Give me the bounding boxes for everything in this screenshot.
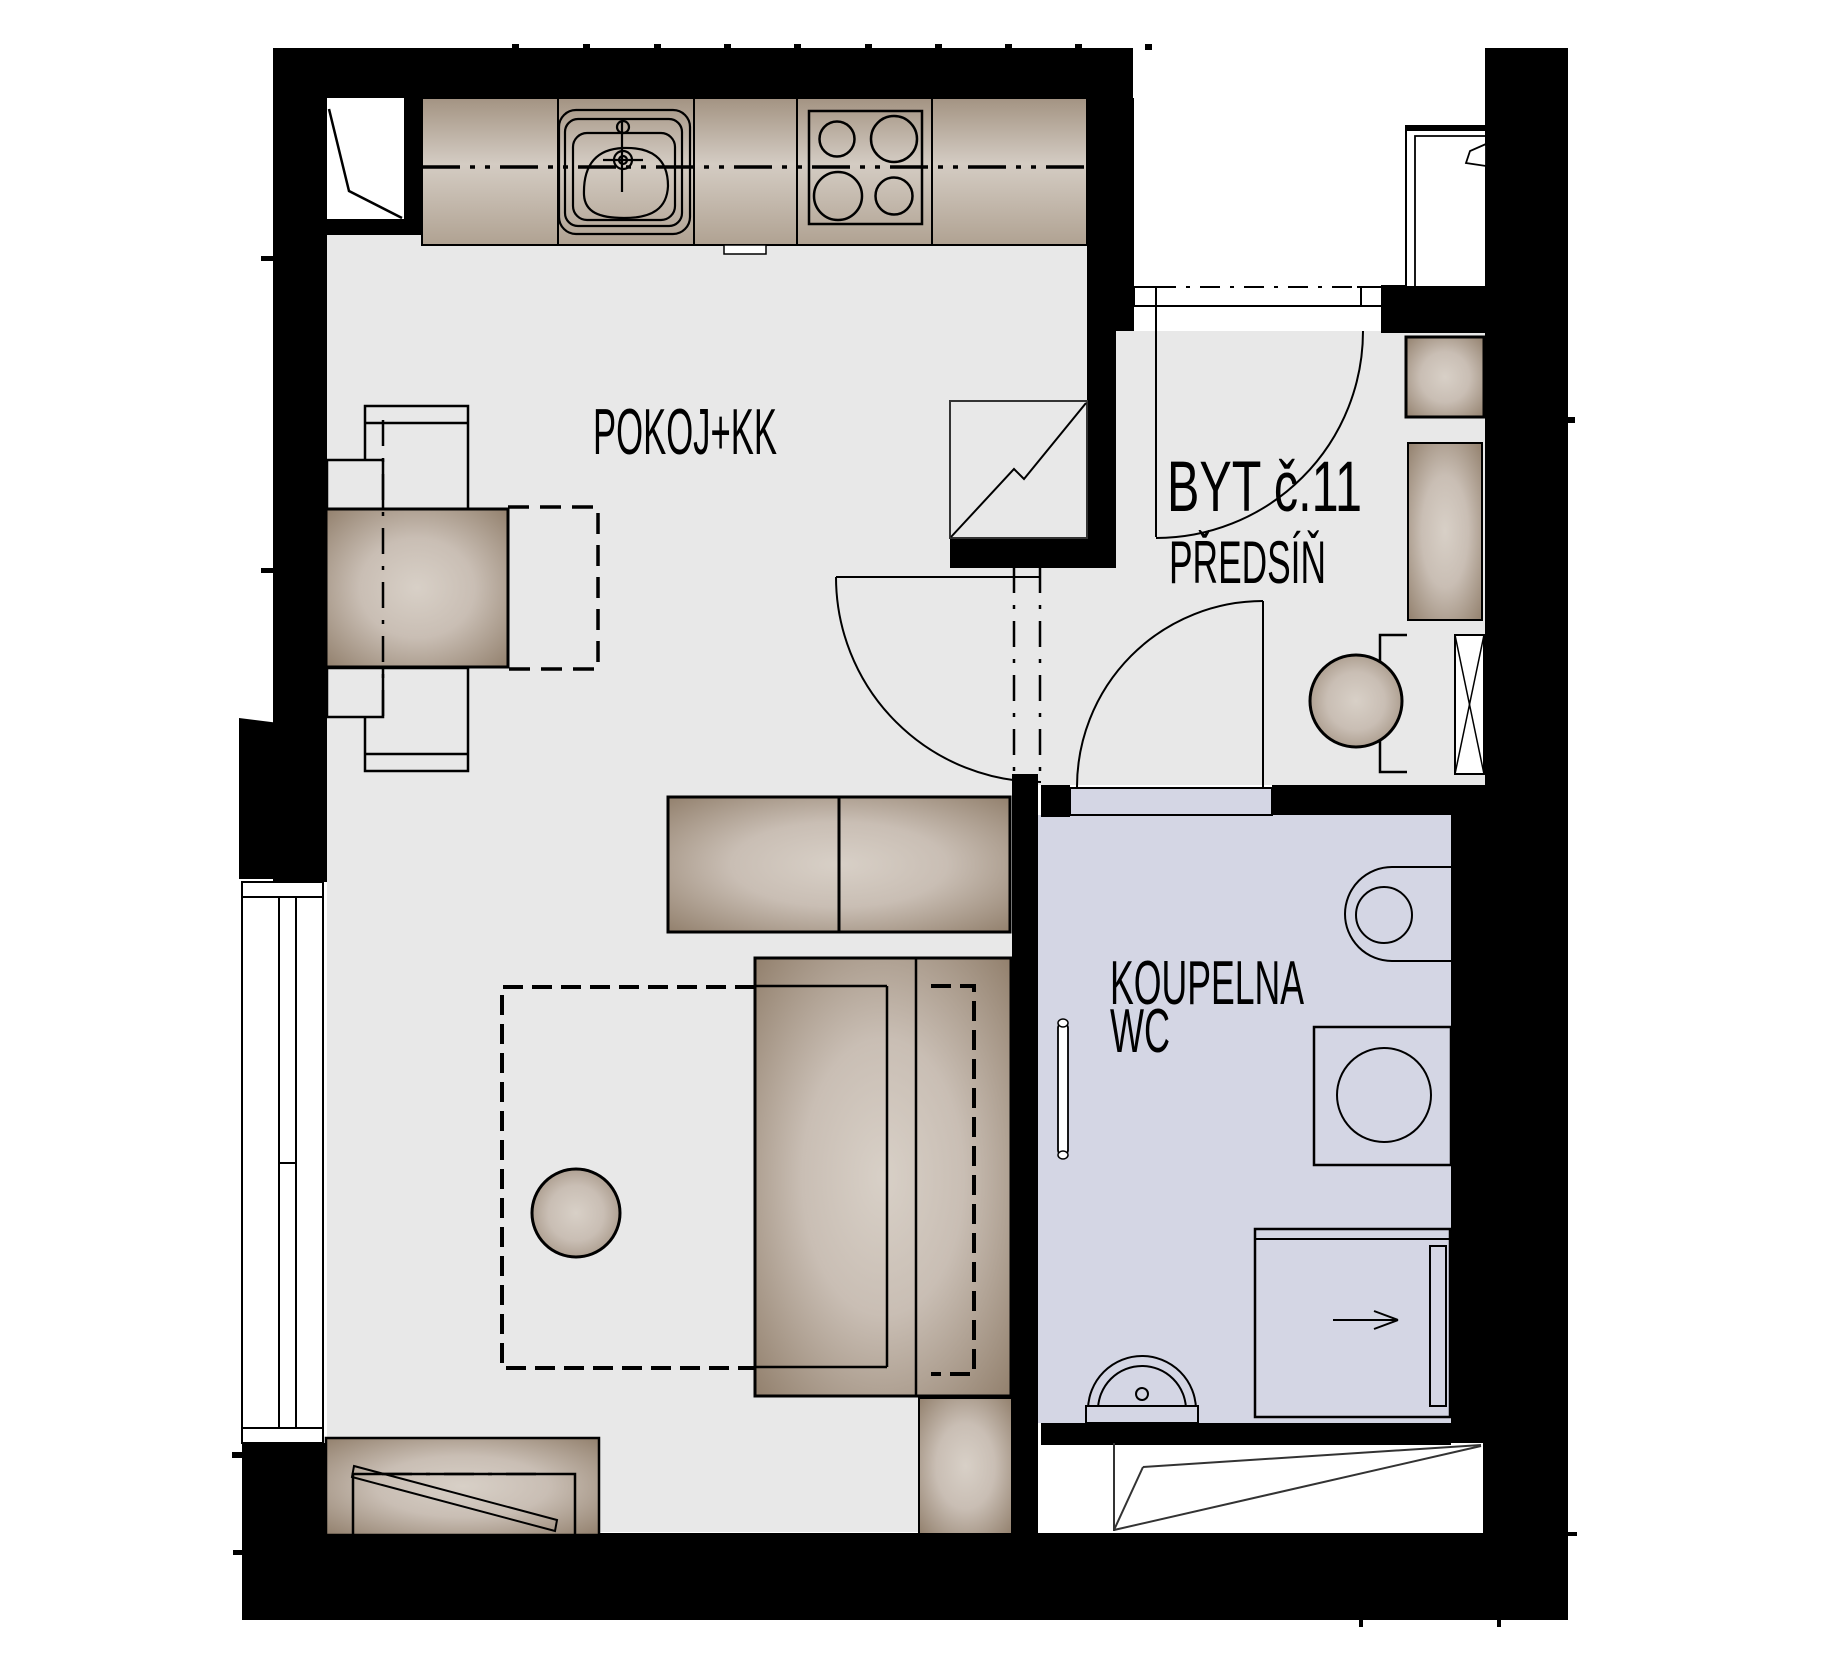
- svg-text:WC: WC: [1110, 997, 1170, 1066]
- svg-text:BYT č.11: BYT č.11: [1167, 448, 1362, 527]
- svg-text:PŘEDSÍŇ: PŘEDSÍŇ: [1169, 529, 1326, 596]
- svg-text:POKOJ+KK: POKOJ+KK: [593, 395, 777, 468]
